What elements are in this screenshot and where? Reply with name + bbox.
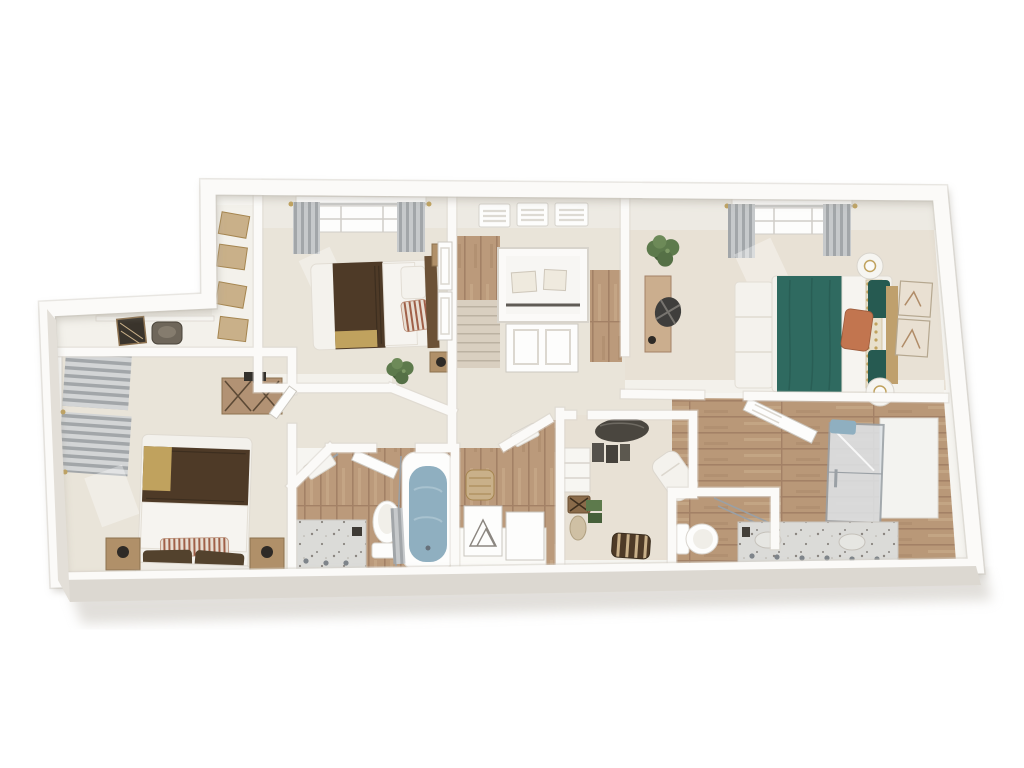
stair-landing xyxy=(456,236,500,302)
storage-box xyxy=(511,271,536,293)
vanity xyxy=(296,520,366,570)
cubby-shelves xyxy=(564,448,590,492)
stairwell xyxy=(454,236,500,368)
curtain-panel-right xyxy=(397,202,425,252)
floor-plan-render xyxy=(0,0,1024,768)
curtain-panel-left xyxy=(293,202,320,254)
striped-pillow xyxy=(400,299,430,332)
lamp xyxy=(436,357,446,367)
nightstand-round xyxy=(857,253,883,279)
faucet xyxy=(303,558,308,563)
faucet xyxy=(343,560,348,565)
stair-landing-floor xyxy=(590,270,622,362)
leaning-frame-triangle xyxy=(464,506,502,556)
glass-shower xyxy=(826,423,883,523)
bathtub xyxy=(391,452,454,570)
leaning-frame xyxy=(506,512,544,560)
tall-bag xyxy=(570,516,586,540)
storage-box xyxy=(543,269,566,290)
hanging-clothes xyxy=(592,443,630,463)
gold-blanket-band xyxy=(335,330,378,348)
folded-clothes xyxy=(586,500,602,511)
pillow xyxy=(401,266,426,299)
linen-closet xyxy=(498,248,588,372)
lamp xyxy=(261,546,273,558)
drain xyxy=(426,546,431,551)
blue-towel xyxy=(830,419,857,435)
orange-pillow xyxy=(840,308,873,352)
soap-bottle xyxy=(742,527,750,537)
hall-clerestory-windows xyxy=(479,203,588,227)
hamper xyxy=(466,470,494,500)
shelf xyxy=(96,316,214,321)
storage-bench xyxy=(735,282,773,388)
desk-lamp xyxy=(648,336,656,344)
shower-stall xyxy=(880,418,938,518)
stair-steps xyxy=(456,300,500,368)
closet-door xyxy=(506,324,578,372)
gold-blanket-corner xyxy=(142,446,172,491)
toilet xyxy=(676,524,718,554)
curtain-panel-right xyxy=(823,204,851,256)
bed xyxy=(135,434,254,579)
faucet xyxy=(323,560,328,565)
master-bed xyxy=(735,276,898,392)
teal-coverlet xyxy=(777,276,843,392)
folded-clothes xyxy=(588,513,602,523)
striped-ottoman xyxy=(611,533,651,560)
lamp xyxy=(117,546,129,558)
hall-floor-b xyxy=(292,388,460,448)
sink xyxy=(839,534,865,550)
soap-bottle xyxy=(352,527,362,536)
floor-plan-svg xyxy=(0,0,1024,768)
